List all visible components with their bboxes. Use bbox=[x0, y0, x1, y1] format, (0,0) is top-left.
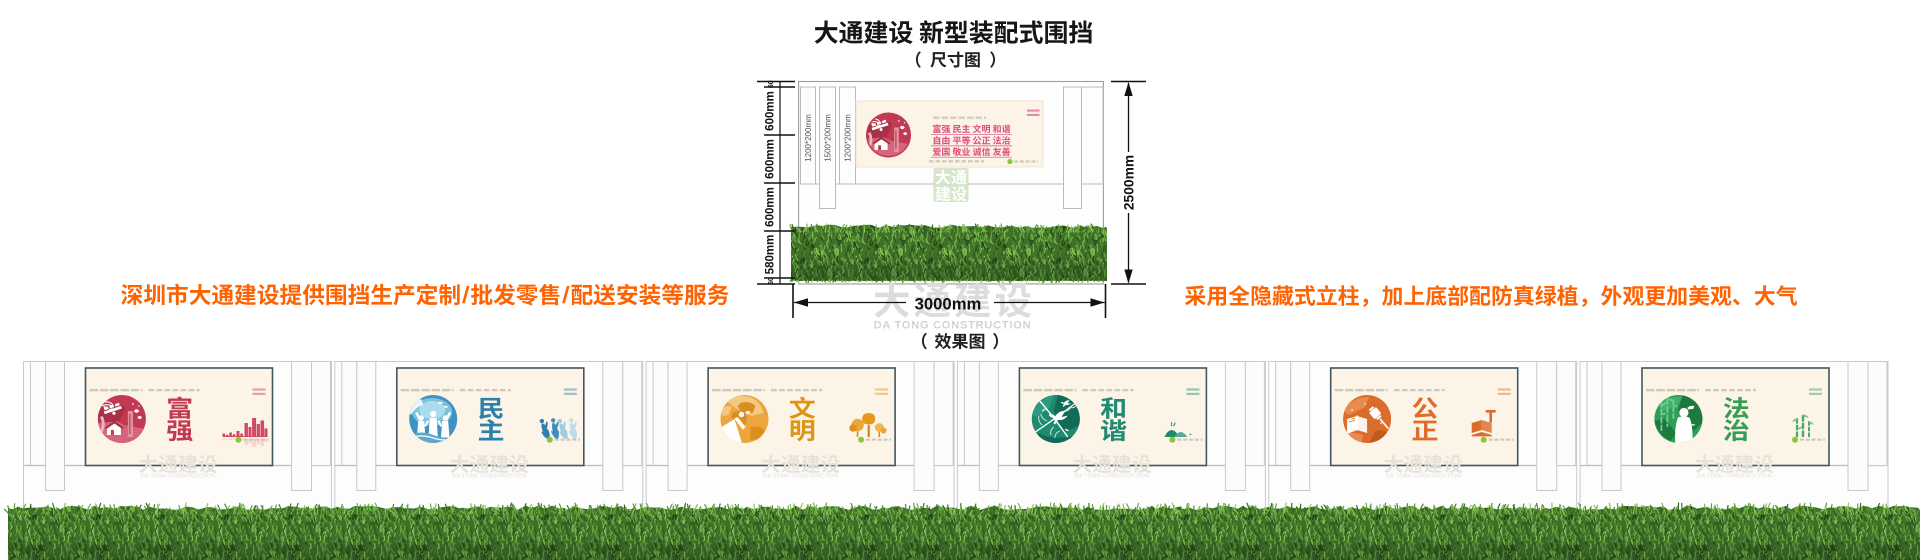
svg-text:DA TONG CONSTRUCTION: DA TONG CONSTRUCTION bbox=[1697, 474, 1772, 480]
svg-text:600mm: 600mm bbox=[765, 91, 777, 131]
svg-text:DA TONG CONSTRUCTION: DA TONG CONSTRUCTION bbox=[1386, 474, 1461, 480]
svg-text:DA TONG CONSTRUCTION: DA TONG CONSTRUCTION bbox=[141, 474, 216, 480]
svg-text:1200*200mm: 1200*200mm bbox=[843, 114, 852, 162]
svg-text:DA TONG CONSTRUCTION: DA TONG CONSTRUCTION bbox=[452, 474, 527, 480]
svg-text:600mm: 600mm bbox=[765, 187, 777, 227]
svg-text:3000mm: 3000mm bbox=[915, 295, 982, 314]
svg-text:580mm: 580mm bbox=[765, 235, 777, 275]
svg-text:600mm: 600mm bbox=[765, 139, 777, 179]
svg-text:60: 60 bbox=[768, 80, 775, 88]
svg-text:DA TONG CONSTRUCTION: DA TONG CONSTRUCTION bbox=[874, 320, 1032, 332]
svg-text:1500*200mm: 1500*200mm bbox=[823, 114, 832, 162]
svg-text:60: 60 bbox=[768, 277, 775, 285]
svg-text:1200*200mm: 1200*200mm bbox=[804, 114, 813, 162]
svg-text:DA TONG CONSTRUCTION: DA TONG CONSTRUCTION bbox=[1075, 474, 1150, 480]
svg-text:2500mm: 2500mm bbox=[1122, 155, 1137, 210]
svg-text:DA TONG CONSTRUCTION: DA TONG CONSTRUCTION bbox=[763, 474, 838, 480]
